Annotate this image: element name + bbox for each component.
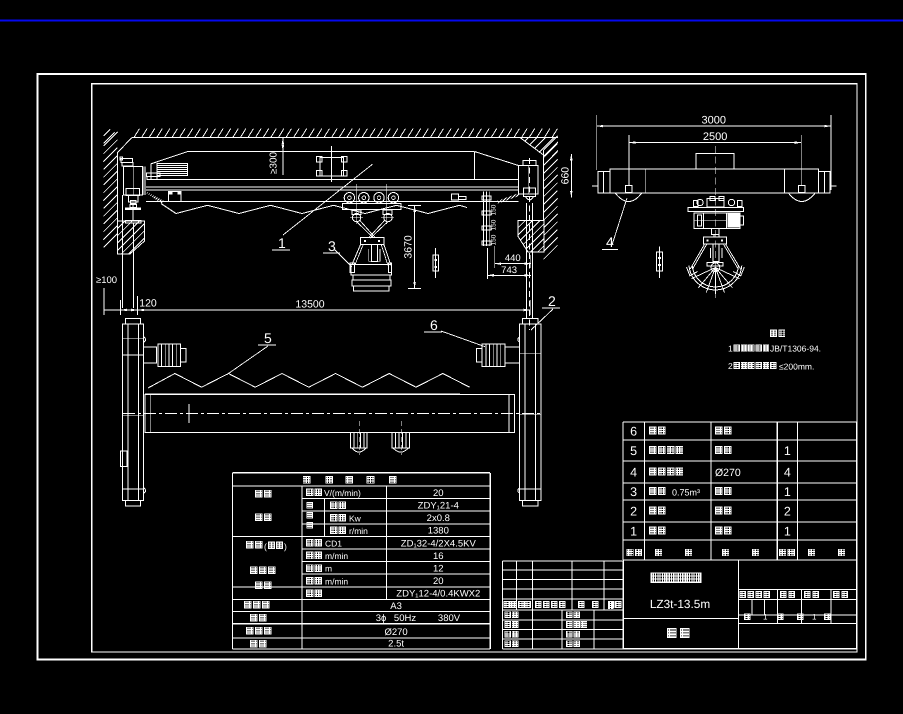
svg-text:1: 1 [728,344,733,354]
svg-text:3: 3 [630,485,637,499]
svg-text:1380: 1380 [428,526,449,537]
svg-text:1: 1 [812,612,817,621]
svg-text:Kw: Kw [349,513,362,523]
svg-text:ZDY₁12-4/0.4KWX2: ZDY₁12-4/0.4KWX2 [396,589,480,600]
svg-text:ZD₁32-4/2X4.5KV: ZD₁32-4/2X4.5KV [401,538,477,549]
svg-text:≥100: ≥100 [96,275,117,286]
svg-text:2: 2 [784,505,791,519]
svg-text:1: 1 [784,444,791,458]
svg-text:CD1: CD1 [325,539,342,549]
svg-text:440: 440 [505,253,521,264]
svg-text:1: 1 [763,612,768,621]
svg-text:4: 4 [630,466,637,480]
svg-text:): ) [284,542,287,552]
svg-text:2: 2 [548,293,556,309]
svg-text:1: 1 [630,525,637,539]
svg-text:3ɸ: 3ɸ [376,613,387,624]
svg-text:660: 660 [559,167,571,185]
svg-text:0.75m³: 0.75m³ [672,487,700,497]
svg-text:12: 12 [433,564,444,575]
svg-text:A3: A3 [390,601,402,612]
svg-text:r/min: r/min [349,526,368,536]
svg-text:120: 120 [139,298,157,310]
svg-text:3000: 3000 [702,115,726,127]
svg-text:150: 150 [491,219,498,230]
svg-text:JB/T1306-94.: JB/T1306-94. [770,344,821,354]
svg-text:50Hz: 50Hz [394,613,416,624]
svg-text:20: 20 [433,576,444,587]
svg-text:2: 2 [630,505,637,519]
svg-text:V/(m/min): V/(m/min) [324,488,361,498]
svg-text:2.5t: 2.5t [388,638,404,649]
svg-text:m: m [325,564,332,574]
svg-text:(: ( [264,542,267,552]
svg-text:13500: 13500 [295,299,324,311]
svg-text:LZ3t-13.5m: LZ3t-13.5m [650,597,710,611]
svg-text:ZDY₁21-4: ZDY₁21-4 [418,501,459,512]
svg-text:150: 150 [491,234,498,245]
svg-text:≤200mm.: ≤200mm. [779,362,814,372]
svg-text:20: 20 [433,488,444,499]
svg-text:3: 3 [328,238,336,254]
svg-text:2500: 2500 [703,131,727,143]
svg-text:16: 16 [433,551,444,562]
svg-text:5: 5 [630,444,637,458]
svg-text:1: 1 [784,485,791,499]
svg-text:380V: 380V [438,613,461,624]
svg-text:743: 743 [501,265,517,276]
svg-text:4: 4 [784,466,791,480]
svg-text:1: 1 [278,235,286,251]
svg-text:2: 2 [728,361,733,371]
svg-text:6: 6 [430,317,438,333]
svg-text:Ø270: Ø270 [715,467,741,479]
svg-text:5: 5 [264,330,272,346]
svg-text:3670: 3670 [403,235,415,259]
svg-text:m/min: m/min [325,551,348,561]
svg-text:m/min: m/min [325,576,348,586]
svg-text:≥300: ≥300 [269,151,280,174]
svg-text:2x0.8: 2x0.8 [427,513,450,524]
svg-text:150: 150 [491,204,498,215]
svg-text:1: 1 [784,525,791,539]
svg-text:6: 6 [630,425,637,439]
svg-text:Ø270: Ø270 [384,627,407,638]
